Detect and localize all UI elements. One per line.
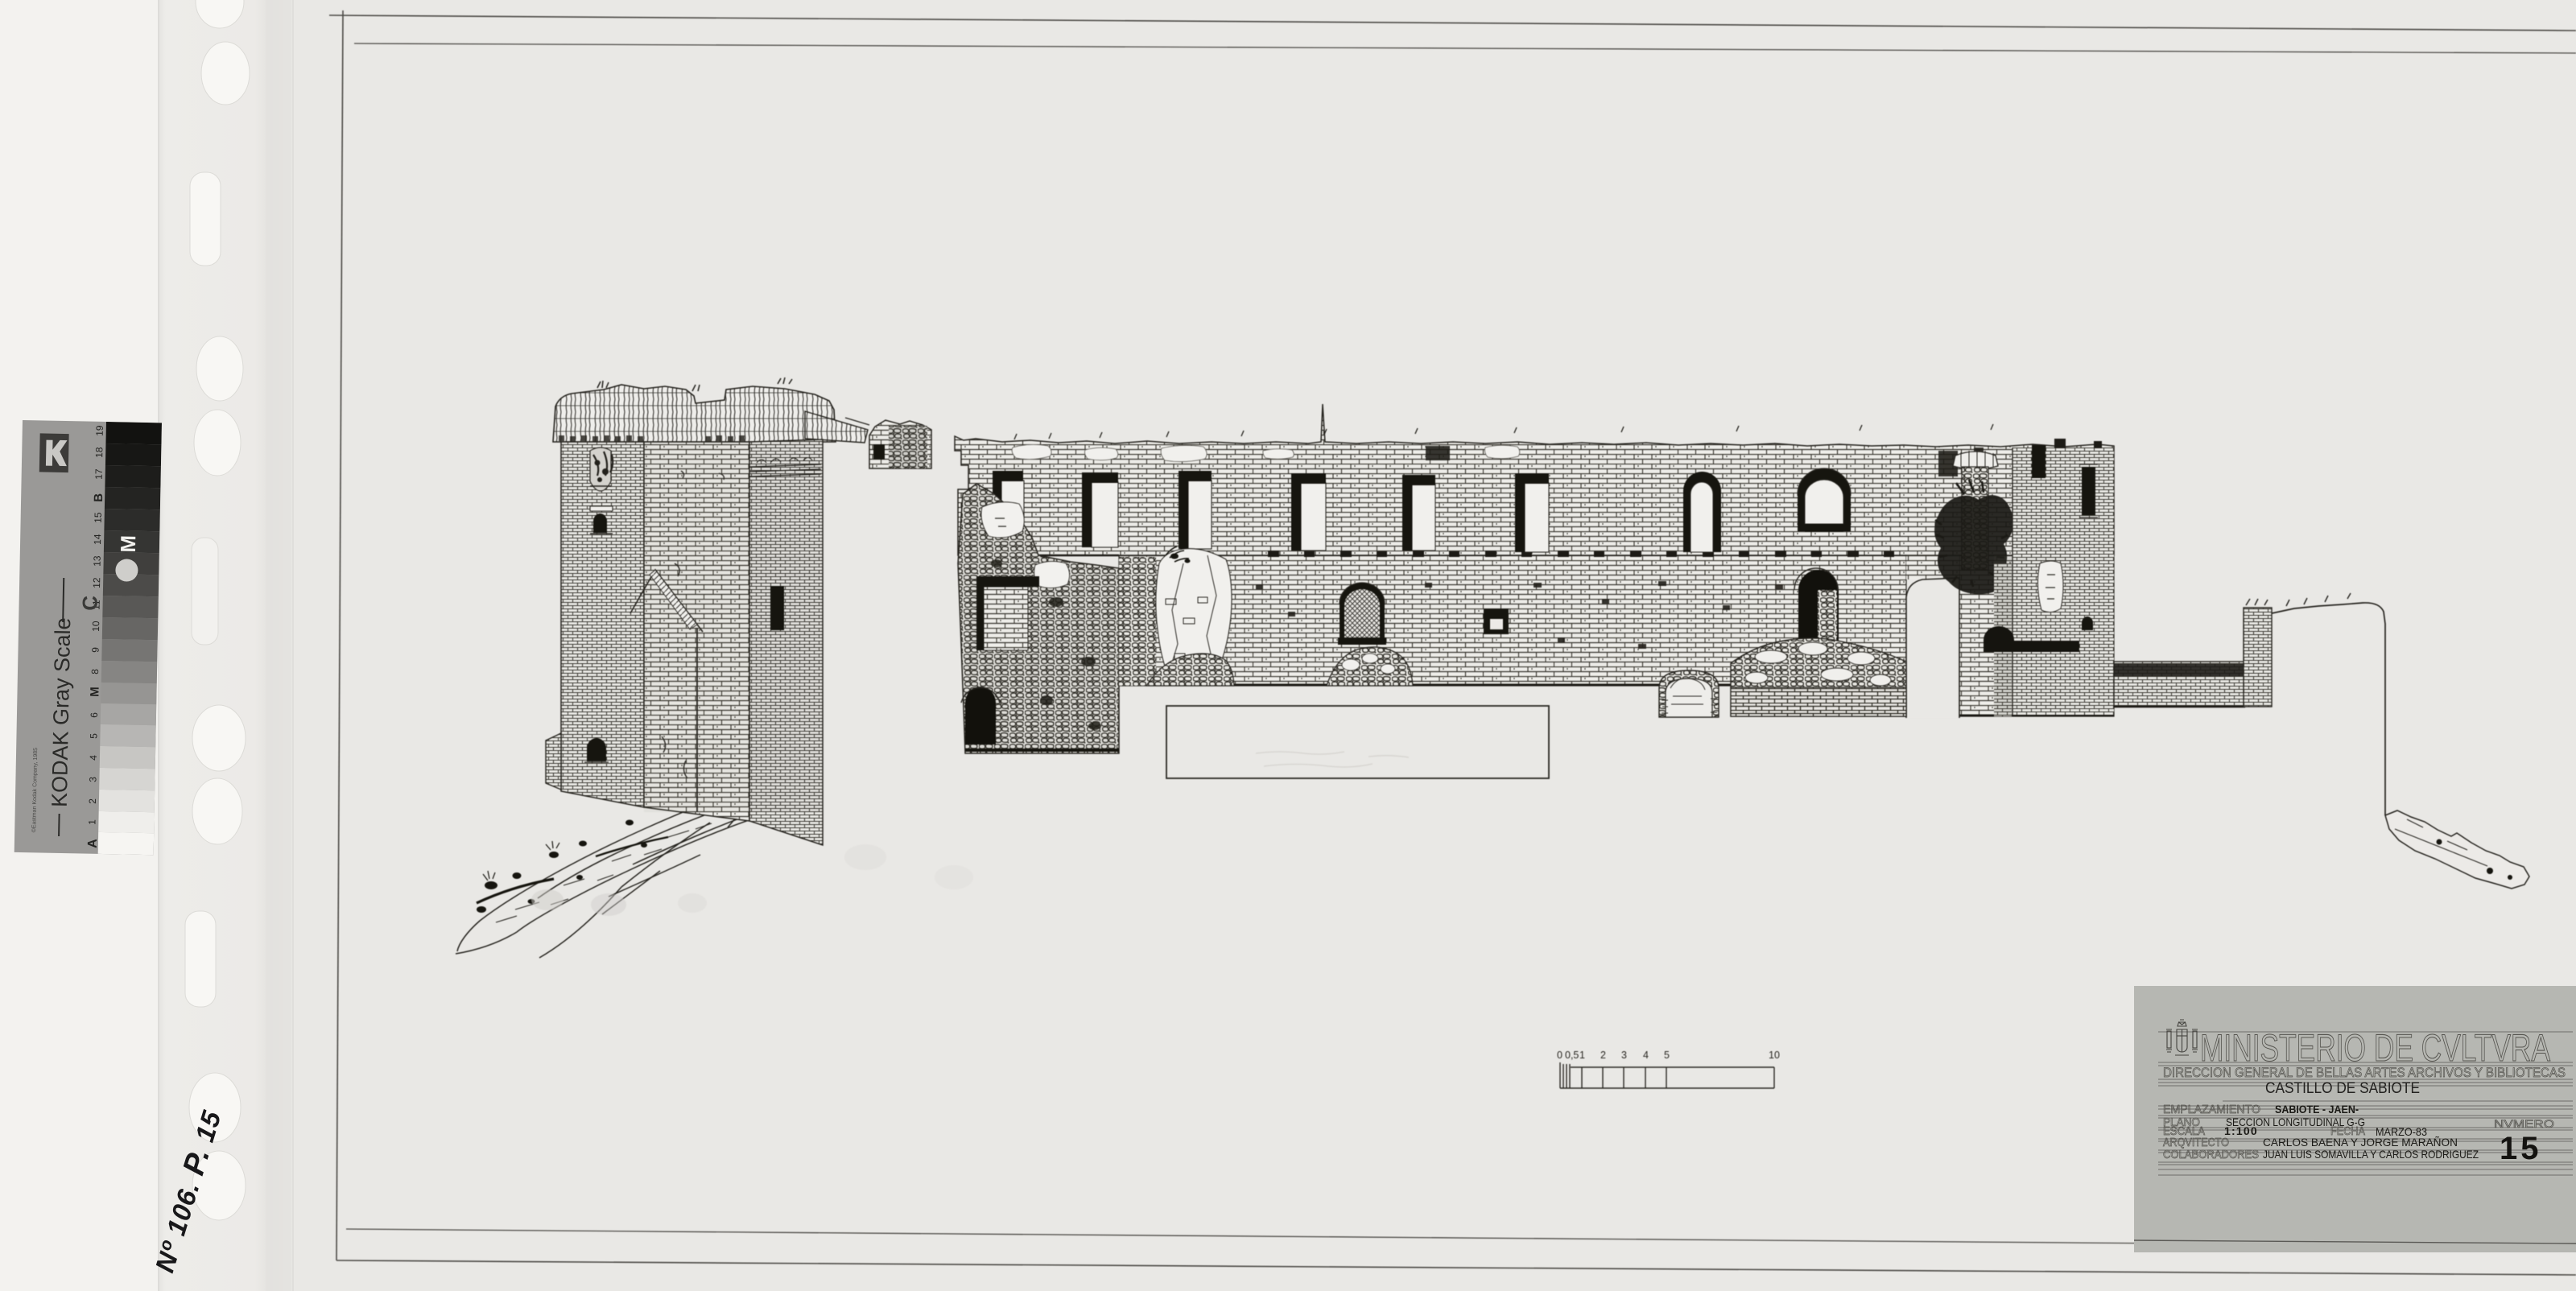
svg-text:1: 1	[1579, 1050, 1585, 1061]
svg-text:0,5: 0,5	[1565, 1050, 1579, 1061]
svg-text:CASTILLO DE SABIOTE: CASTILLO DE SABIOTE	[2265, 1080, 2420, 1097]
svg-text:10: 10	[1769, 1050, 1780, 1061]
svg-text:DIRECCION GENERAL DE BELLAS AR: DIRECCION GENERAL DE BELLAS ARTES ARCHIV…	[2163, 1066, 2566, 1080]
svg-text:EMPLAZAMIENTO: EMPLAZAMIENTO	[2163, 1103, 2260, 1116]
svg-text:4: 4	[1643, 1050, 1649, 1061]
svg-text:SABIOTE - JAEN-: SABIOTE - JAEN-	[2275, 1103, 2359, 1116]
svg-text:NVMERO: NVMERO	[2494, 1117, 2554, 1130]
svg-text:ARQVITECTO: ARQVITECTO	[2163, 1136, 2229, 1149]
svg-text:0: 0	[1557, 1050, 1563, 1061]
svg-text:MINISTERIO DE CVLTVRA: MINISTERIO DE CVLTVRA	[2200, 1026, 2550, 1069]
svg-text:15: 15	[2500, 1131, 2542, 1166]
svg-text:COLABORADORES: COLABORADORES	[2163, 1149, 2259, 1161]
svg-text:3: 3	[1621, 1050, 1627, 1061]
svg-text:1:100: 1:100	[2224, 1124, 2258, 1137]
svg-text:5: 5	[1664, 1050, 1670, 1061]
svg-text:JUAN LUIS SOMAVILLA Y CARLOS R: JUAN LUIS SOMAVILLA Y CARLOS RODRIGUEZ	[2263, 1148, 2479, 1161]
svg-text:2: 2	[1600, 1050, 1606, 1061]
svg-text:CARLOS BAENA Y JORGE MARAÑON: CARLOS BAENA Y JORGE MARAÑON	[2263, 1136, 2458, 1149]
